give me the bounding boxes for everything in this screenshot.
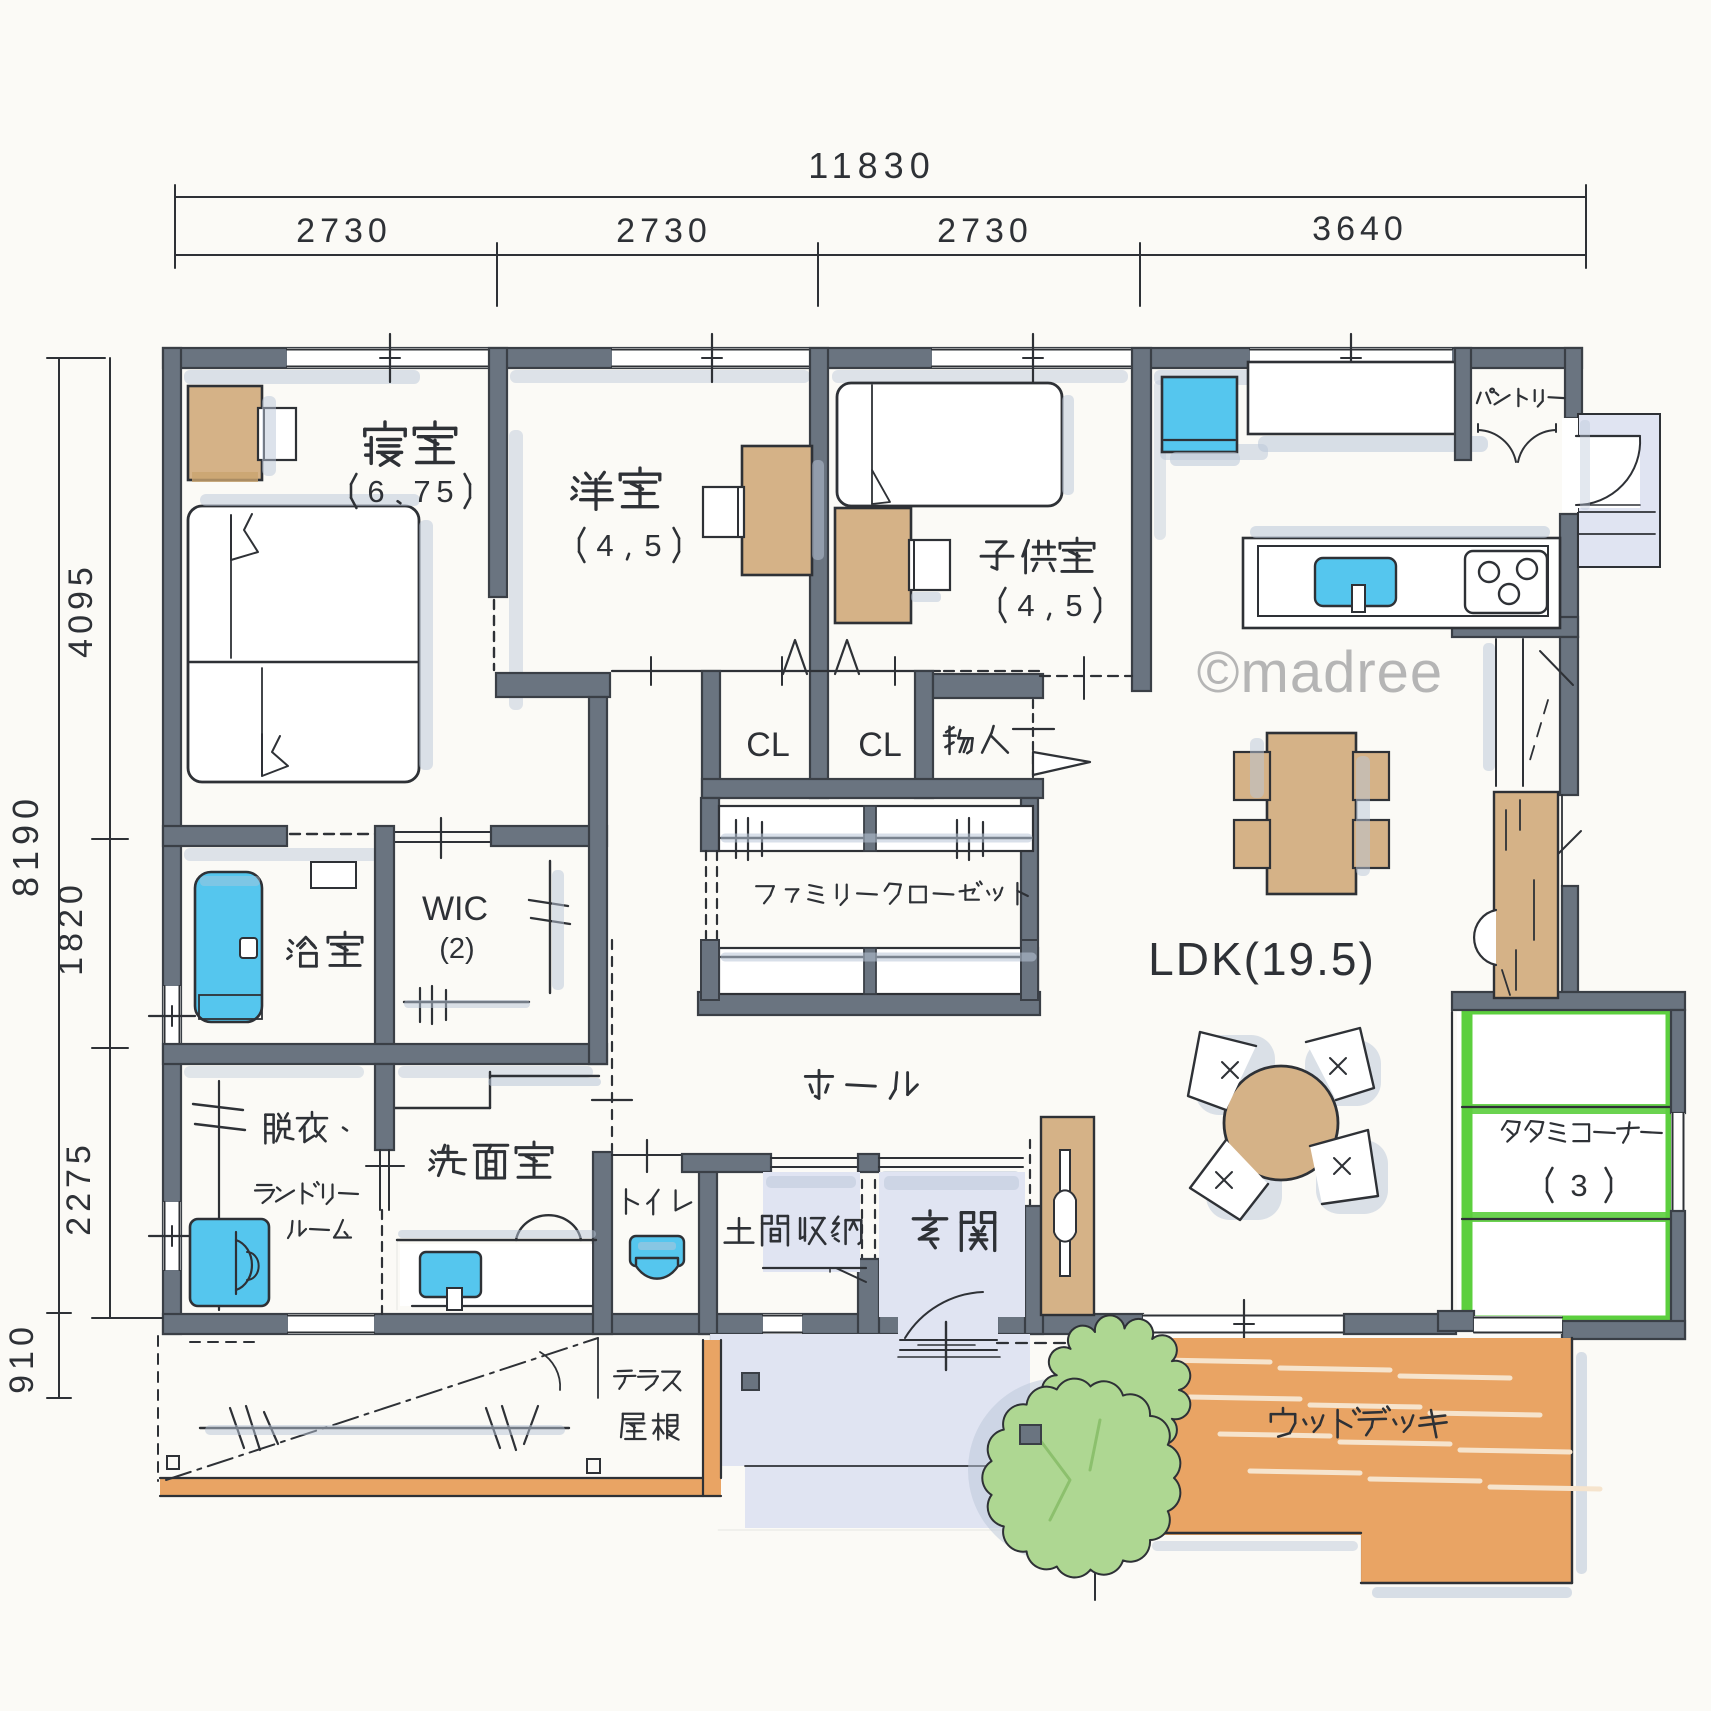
svg-text:5: 5 (436, 474, 453, 509)
svg-text:8190: 8190 (5, 793, 46, 897)
svg-text:2730: 2730 (616, 212, 712, 250)
svg-text:4: 4 (1017, 588, 1034, 623)
svg-text:(2): (2) (439, 933, 474, 965)
svg-text:©madree: ©madree (1197, 640, 1443, 705)
svg-text:CL: CL (746, 726, 789, 764)
svg-text:4095: 4095 (62, 562, 100, 658)
svg-text:5: 5 (1065, 588, 1082, 623)
svg-text:11830: 11830 (808, 145, 935, 186)
svg-text:6: 6 (367, 474, 384, 509)
svg-text:2275: 2275 (60, 1140, 98, 1236)
svg-text:2730: 2730 (296, 212, 392, 250)
svg-text:7: 7 (413, 474, 430, 509)
svg-text:910: 910 (3, 1322, 41, 1394)
svg-text:3640: 3640 (1312, 210, 1408, 248)
svg-text:WIC: WIC (422, 890, 488, 928)
svg-text:1820: 1820 (52, 880, 90, 976)
svg-text:4: 4 (596, 528, 613, 563)
svg-text:CL: CL (858, 726, 901, 764)
svg-text:2730: 2730 (937, 212, 1033, 250)
svg-text:3: 3 (1570, 1168, 1587, 1203)
svg-text:LDK(19.5): LDK(19.5) (1148, 933, 1376, 985)
svg-text:5: 5 (644, 528, 661, 563)
